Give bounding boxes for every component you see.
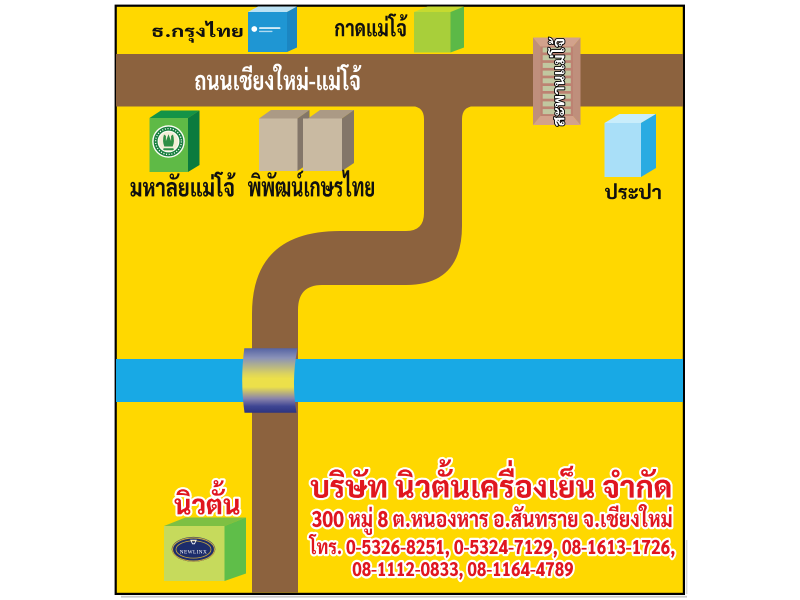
svg-text:NEWLINX: NEWLINX [180,550,208,556]
